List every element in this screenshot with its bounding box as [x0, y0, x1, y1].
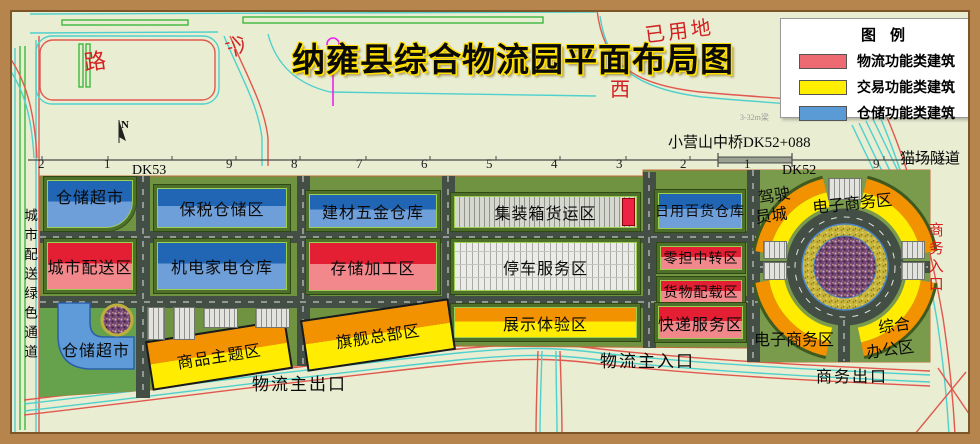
zone-storage-processing: 存储加工区: [306, 239, 440, 294]
roundabout-island: [802, 224, 888, 310]
label-bridge: 小营山中桥DK52+088: [668, 136, 811, 152]
label-north: N: [121, 120, 129, 132]
legend-item-storage: 仓储功能类建筑: [799, 103, 980, 123]
legend-swatch-red: [799, 54, 847, 69]
label-business-exit: 商务出口: [816, 370, 888, 387]
legend-item-trade: 交易功能类建筑: [799, 77, 980, 97]
railway-tick: 7: [356, 156, 363, 172]
page-title: 纳雍县综合物流园平面布局图: [292, 44, 722, 79]
zone-label: 城市配送区: [47, 254, 132, 278]
zone-label: 货物配载区: [664, 282, 739, 302]
zone-city-distribution: 城市配送区: [44, 239, 136, 293]
railway-tick: 3: [616, 156, 623, 172]
railway-tick: 9: [226, 156, 233, 172]
label-beam-note: 3-32m梁: [740, 114, 769, 122]
parking-strip: [147, 307, 165, 340]
railway-tick: 1: [104, 156, 111, 172]
zone-express-service: 快递服务区: [655, 303, 746, 342]
legend: 图例 物流功能类建筑 交易功能类建筑 仓储功能类建筑: [780, 18, 980, 118]
railway-tick: 9: [873, 156, 880, 172]
legend-item-logistics: 物流功能类建筑: [799, 51, 980, 71]
zone-exhibition: 展示体验区: [451, 304, 640, 341]
zone-label: 快递服务区: [658, 311, 743, 335]
parking-strip: [763, 262, 787, 280]
parking-strip: [901, 262, 925, 280]
railway-tick: 8: [291, 156, 298, 172]
zone-ltl-transfer: 零担中转区: [657, 243, 745, 273]
zone-label: 停车服务区: [503, 255, 588, 279]
legend-swatch-blue: [799, 106, 847, 121]
parking-strip: [901, 241, 925, 259]
zone-label: 存储加工区: [330, 255, 415, 279]
label-driver-city-2: 员城: [753, 200, 788, 228]
parking-strip: [173, 307, 195, 340]
zone-electromechanical: 机电家电仓库: [154, 239, 290, 293]
container-red-bay: [622, 198, 635, 226]
railway-tick: 4: [551, 156, 558, 172]
zone-label: 仓储超市: [56, 184, 124, 208]
label-ecommerce-sw: 电子商务区: [754, 326, 834, 350]
zone-label: 建材五金仓库: [322, 199, 424, 223]
legend-label: 物流功能类建筑: [857, 51, 955, 71]
legend-label: 仓储功能类建筑: [857, 103, 955, 123]
zone-label: 展示体验区: [503, 311, 588, 335]
zone-parking-service: 停车服务区: [451, 239, 640, 294]
label-dk52: DK52: [782, 164, 816, 179]
parking-strip: [763, 241, 787, 259]
zone-container-freight: 集装箱货运区: [451, 193, 640, 231]
railway-tick: 1: [744, 156, 751, 172]
railway-tick: 2: [680, 156, 687, 172]
zone-label: 机电家电仓库: [171, 254, 273, 278]
zone-bonded-storage: 保税仓储区: [154, 185, 290, 231]
bridge-symbol: [718, 157, 792, 163]
zone-label: 商品主题区: [175, 336, 263, 373]
parking-strip: [255, 308, 290, 328]
legend-label: 交易功能类建筑: [857, 77, 955, 97]
label-logistics-entrance: 物流主入口: [600, 353, 695, 371]
legend-title: 图例: [781, 24, 980, 45]
railway-tick: 6: [421, 156, 428, 172]
zone-building-materials: 建材五金仓库: [306, 191, 440, 231]
railway-tick: 5: [486, 156, 493, 172]
label-green-channel: 城市配送绿色通道: [22, 208, 36, 364]
zone-label: 旗舰总部区: [334, 317, 422, 353]
railway-tick: 2: [38, 156, 45, 172]
zone-label: 集装箱货运区: [494, 200, 596, 224]
zone-label: 零担中转区: [664, 248, 739, 268]
legend-swatch-yellow: [799, 80, 847, 95]
zone-daily-goods: 日用百货仓库: [655, 190, 745, 232]
label-logistics-exit: 物流主出口: [252, 376, 347, 394]
zone-label: 保税仓储区: [179, 196, 264, 220]
plan-map: 仓储超市 保税仓储区 建材五金仓库 集装箱货运区 日用百货仓库 城市配送区 机电…: [0, 0, 980, 444]
zone-storage-supermarket-1: 仓储超市: [44, 177, 136, 231]
zone-storage-supermarket-2-label: 仓储超市: [62, 344, 130, 361]
railway: [28, 153, 958, 167]
label-west: 西: [610, 80, 630, 101]
label-business-entrance: 商务入口: [926, 222, 942, 294]
zone-label: 日用百货仓库: [655, 201, 745, 221]
landscape-tree: [102, 305, 132, 335]
label-dk53: DK53: [132, 164, 166, 179]
label-tunnel: 猫场隧道: [900, 152, 960, 168]
label-road: 路: [83, 49, 108, 75]
parking-strip: [203, 308, 238, 328]
